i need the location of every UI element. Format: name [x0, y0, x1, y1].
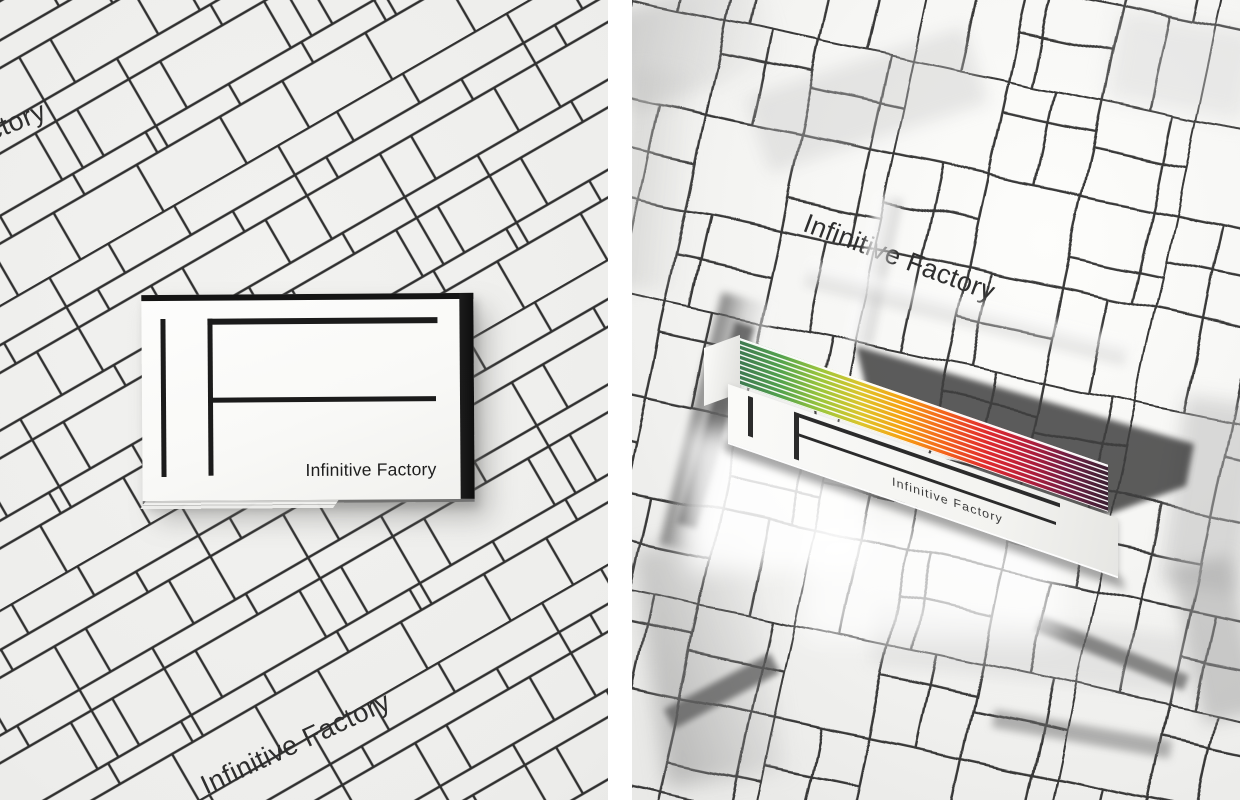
left-photo-panel: ctory Infinitive Factory Infinitive Fact…	[0, 0, 608, 800]
card-brand-text: Infinitive Factory	[305, 459, 436, 481]
if-logo-f-top-bar	[207, 317, 437, 325]
if-logo-f-mid-bar	[208, 396, 436, 403]
if-logo-i-bar	[748, 396, 753, 438]
card-understack-edges	[139, 500, 338, 511]
photo-diptych: ctory Infinitive Factory Infinitive Fact…	[0, 0, 1240, 800]
card-stack-shadow	[632, 0, 1240, 800]
right-photo-panel: Infinitive Factory Infinitive Factory	[632, 0, 1240, 800]
if-logo-i-bar	[160, 319, 166, 477]
business-card: Infinitive Factory	[141, 293, 474, 504]
card-black-right-edge	[459, 293, 474, 499]
card-black-top-edge	[141, 293, 473, 301]
